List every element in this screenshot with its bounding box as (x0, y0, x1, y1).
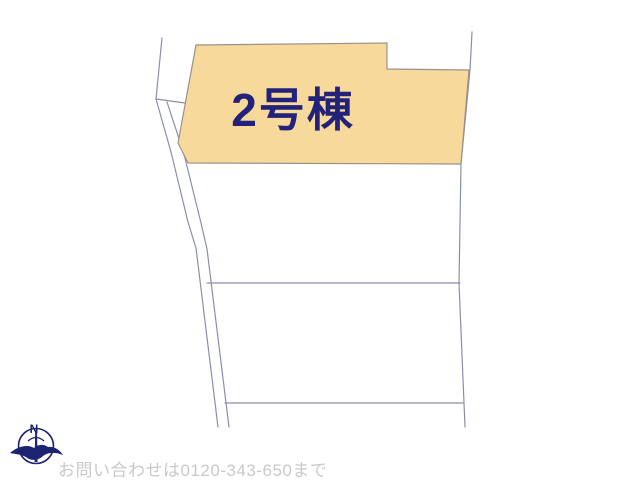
compass-north-icon: N (10, 422, 63, 464)
boundary-line-top-left (156, 38, 162, 99)
lot-2-label: 2号棟 (231, 84, 355, 136)
boundary-line-connector (156, 99, 185, 103)
contact-phone-text: お問い合わせは0120-343-650まで (58, 456, 327, 481)
site-plan-canvas: 2号棟 N (0, 0, 640, 480)
lot-layout-drawing: 2号棟 N お問い合わせは0120-343-650まで (0, 0, 640, 480)
